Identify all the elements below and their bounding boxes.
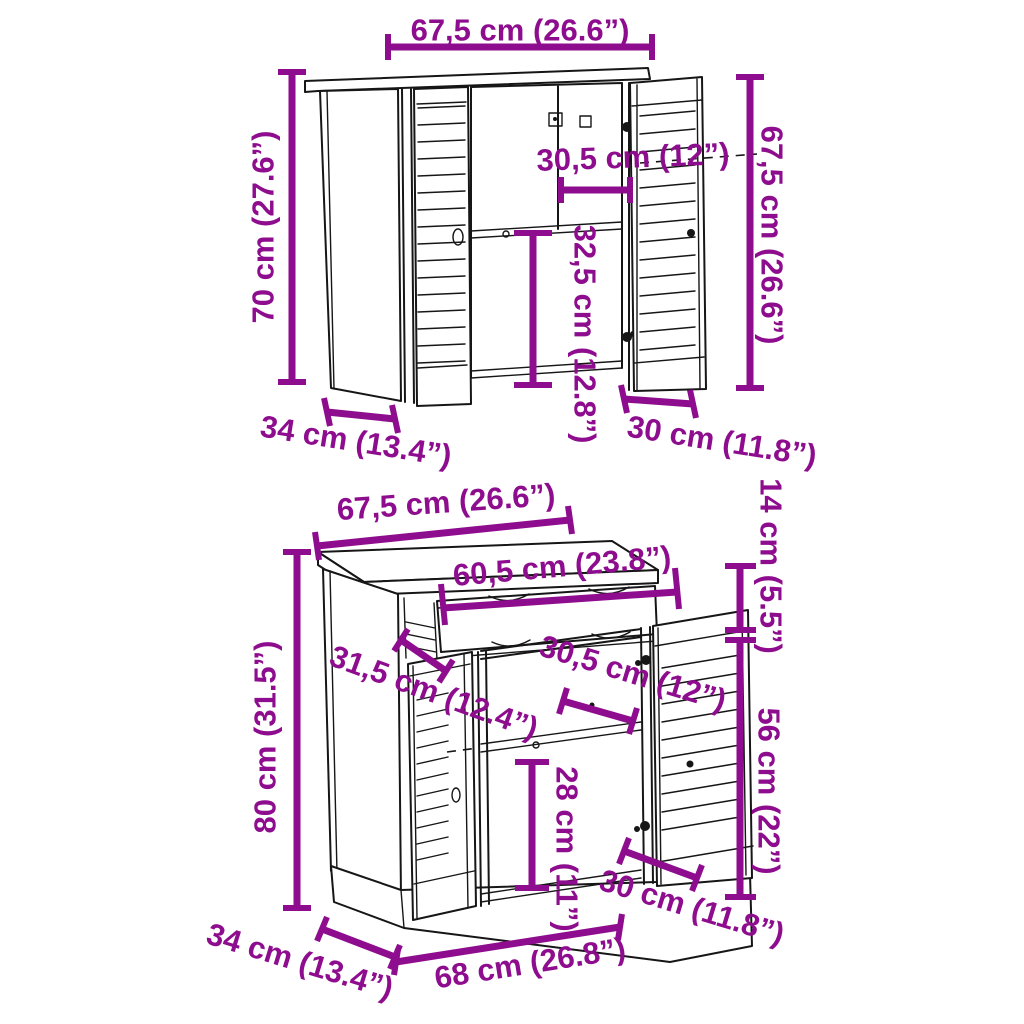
dim-line-depth: [327, 412, 395, 419]
dim-label-door-width: 30 cm (11.8”): [625, 409, 819, 473]
bracket-screw: [553, 117, 557, 121]
front-stile: [402, 89, 414, 403]
top-cabinet-side-panel: [320, 89, 401, 401]
dim-label-bottom-width-top: 67,5 cm (26.6”): [336, 477, 557, 527]
hinge-icon: [640, 821, 650, 831]
dim-label-bottom-inner-height: 28 cm (11”): [550, 766, 585, 931]
dim-label-door-height: 56 cm (22”): [752, 707, 787, 874]
top-cabinet-top-board: [305, 68, 650, 92]
bottom-cabinet-side-panel: [323, 569, 401, 898]
door-knob: [687, 229, 695, 237]
dim-label-inner-width: 30,5 cm (12”): [536, 136, 730, 178]
dim-line-bottom-inner-width: [563, 701, 633, 721]
hinge-icon: [634, 826, 640, 832]
dim-label-height-right: 67,5 cm (26.6”): [755, 126, 790, 345]
dim-line-door-width: [624, 399, 693, 404]
dim-label-top-height: 14 cm (5.5”): [754, 478, 789, 654]
dim-label-height-left: 70 cm (27.6”): [246, 131, 281, 324]
dim-label-inner-height: 32,5 cm (12.8”): [568, 225, 603, 444]
product-dimension-diagram: 67,5 cm (26.6”) 70 cm (27.6”) 67,5 cm (2…: [0, 0, 1024, 1024]
top-cabinet-left-door: [414, 87, 471, 406]
door-knob: [687, 761, 694, 768]
wall-bracket: [580, 116, 591, 127]
dim-label-bottom-depth: 34 cm (13.4”): [203, 916, 398, 1006]
dim-label-top-width: 67,5 cm (26.6”): [411, 13, 630, 48]
diagram-canvas: 67,5 cm (26.6”) 70 cm (27.6”) 67,5 cm (2…: [0, 0, 1024, 1024]
dim-label-total-height: 80 cm (31.5”): [248, 641, 283, 834]
